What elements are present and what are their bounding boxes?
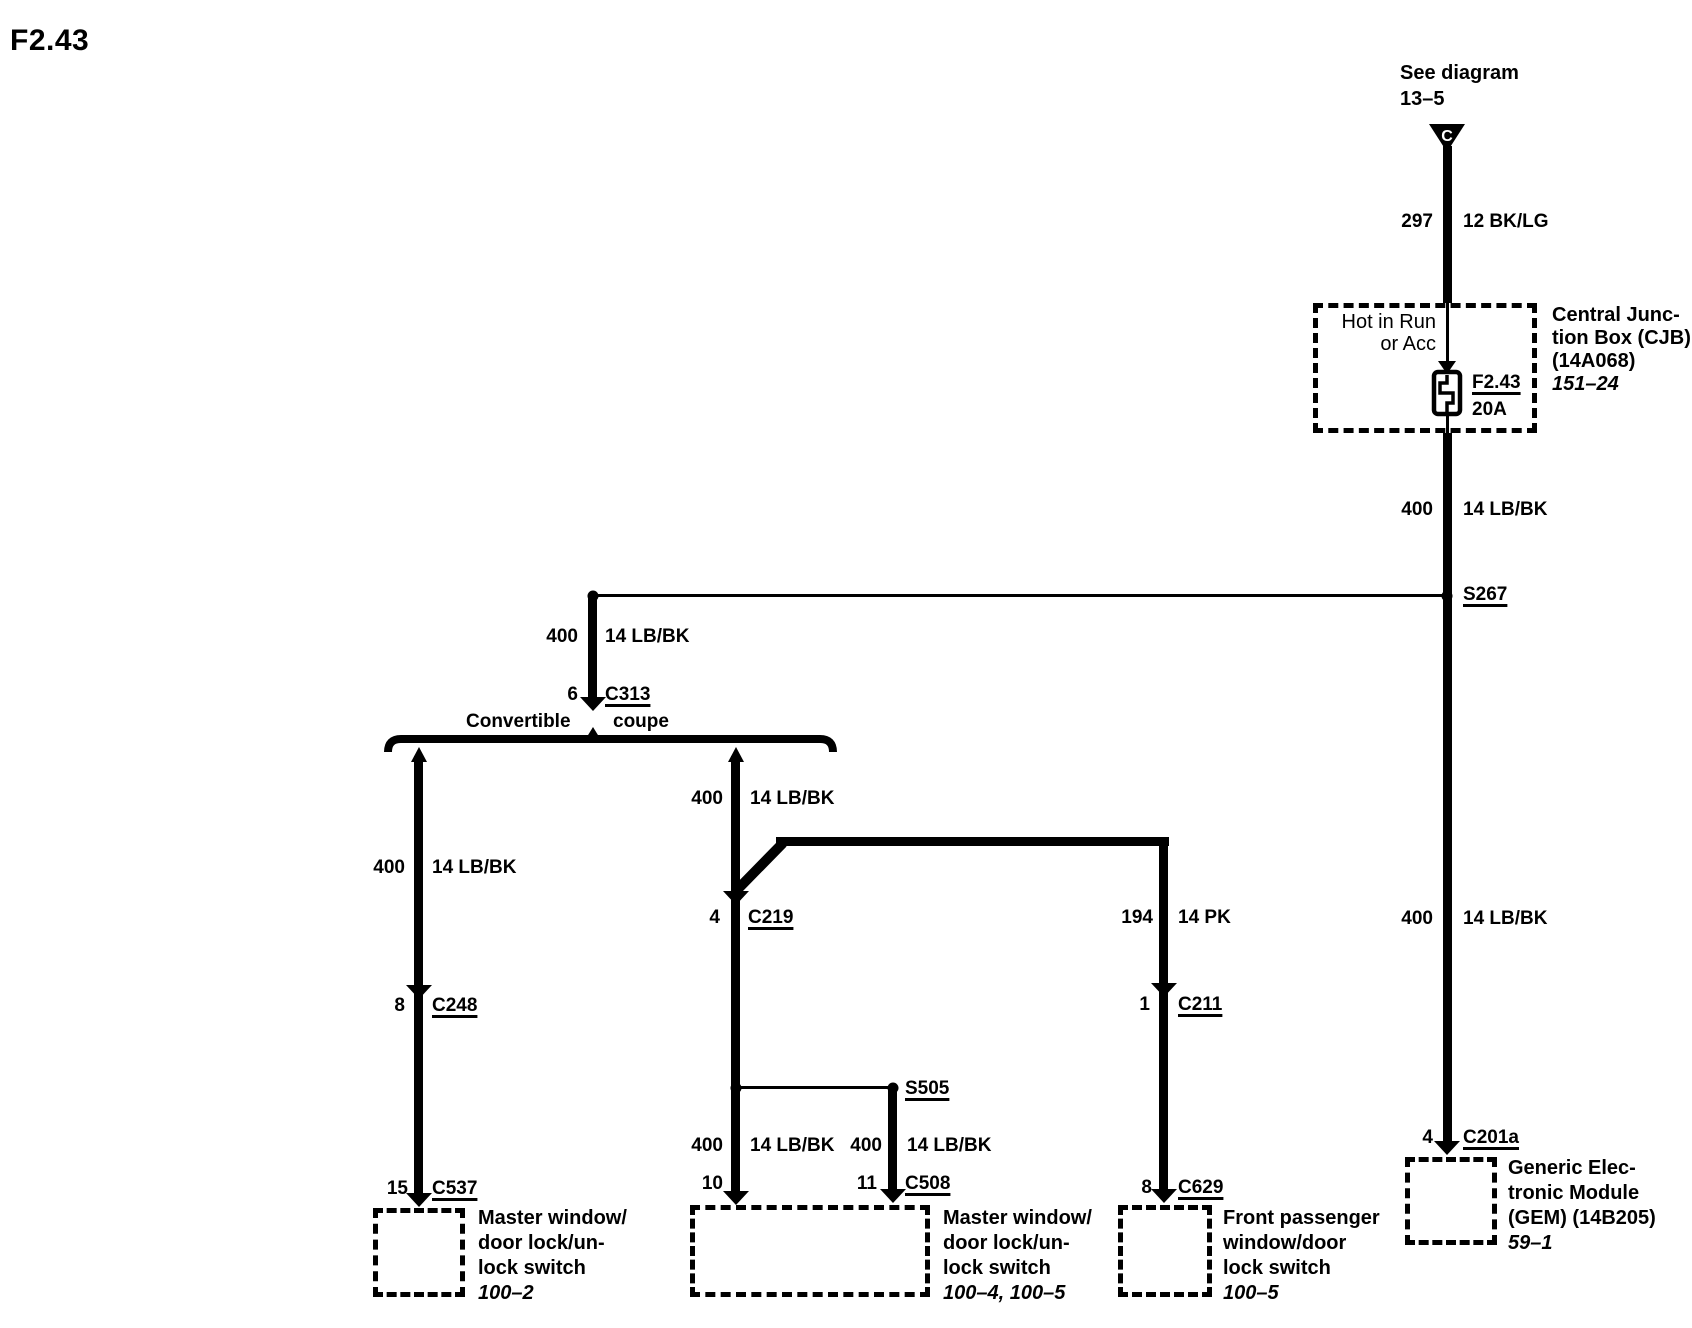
wire-passenger-horizontal — [776, 837, 1169, 846]
cjb-page-ref: 151–24 — [1552, 373, 1691, 396]
connector-c313-arrow-icon — [580, 697, 606, 711]
wire-s505-tap — [736, 1086, 893, 1089]
connector-c201a-pin: 4 — [1422, 1126, 1433, 1150]
connector-c537-label: C537 — [432, 1177, 477, 1201]
splice-s267-label: S267 — [1463, 583, 1507, 607]
wire-feed-vertical — [1443, 146, 1452, 303]
split-bracket — [388, 739, 833, 752]
connector-c211-label: C211 — [1178, 993, 1222, 1017]
component-page-ref: 100–2 — [478, 1281, 627, 1306]
master-switch-convertible-box — [373, 1208, 465, 1297]
splice-s505-label: S505 — [905, 1077, 949, 1101]
gem-label: Generic Elec- tronic Module (GEM) (14B20… — [1508, 1156, 1656, 1256]
source-note-line1: See diagram — [1400, 60, 1519, 86]
circuit-passenger-spec: 14 PK — [1178, 906, 1231, 930]
wire-s267-tap — [593, 594, 1447, 597]
cjb-name-line3: (14A068) — [1552, 350, 1691, 373]
connector-c248-pin: 8 — [394, 994, 405, 1018]
circuit-s505-right-spec: 14 LB/BK — [907, 1134, 991, 1158]
split-convertible-label: Convertible — [466, 710, 571, 734]
component-line: lock switch — [478, 1256, 627, 1281]
component-page-ref: 100–4, 100–5 — [943, 1281, 1092, 1306]
cjb-name-label: Central Junc- tion Box (CJB) (14A068) 15… — [1552, 304, 1691, 396]
circuit-s505-left-number: 400 — [691, 1134, 723, 1158]
circuit-cjb-out-number: 400 — [1401, 498, 1433, 522]
cjb-hot-label: Hot in Run or Acc — [1342, 311, 1437, 355]
master-switch-coupe-label: Master window/ door lock/un- lock switch… — [943, 1206, 1092, 1306]
connector-c219-label: C219 — [748, 906, 793, 930]
connector-c508-pin10: 10 — [702, 1172, 723, 1196]
component-line: window/door — [1223, 1231, 1380, 1256]
split-bracket-tick — [585, 727, 601, 740]
source-note: See diagram 13–5 — [1400, 60, 1519, 112]
wire-coupe-branch — [731, 756, 740, 1195]
circuit-to-c313-spec: 14 LB/BK — [605, 625, 689, 649]
component-line: lock switch — [1223, 1256, 1380, 1281]
source-triangle-letter: C — [1441, 128, 1453, 145]
wire-s505-right-leg — [888, 1088, 897, 1191]
page-title: F2.43 — [10, 24, 89, 58]
connector-c508-pin11: 11 — [857, 1172, 877, 1196]
connector-c629-arrow-icon — [1151, 1189, 1177, 1203]
component-line: door lock/un- — [943, 1231, 1092, 1256]
circuit-cjb-out-spec: 14 LB/BK — [1463, 498, 1547, 522]
component-line: Front passenger — [1223, 1206, 1380, 1231]
component-line: tronic Module — [1508, 1181, 1656, 1206]
circuit-coupe-number: 400 — [691, 787, 723, 811]
diagram-symbols: C — [0, 0, 1692, 1328]
connector-c629-pin: 8 — [1141, 1176, 1152, 1200]
wire-passenger-diagonal — [735, 843, 783, 892]
split-coupe-label: coupe — [613, 710, 669, 734]
circuit-s505-right-number: 400 — [850, 1134, 882, 1158]
circuit-s505-left-spec: 14 LB/BK — [750, 1134, 834, 1158]
connector-c201a-label: C201a — [1463, 1126, 1519, 1150]
master-switch-coupe-box — [690, 1205, 930, 1297]
circuit-feed-spec: 12 BK/LG — [1463, 210, 1549, 234]
connector-c313-pin: 6 — [567, 683, 578, 707]
circuit-to-gem-spec: 14 LB/BK — [1463, 907, 1547, 931]
cjb-hot-line2: or Acc — [1342, 333, 1437, 355]
connector-c629-label: C629 — [1178, 1176, 1223, 1200]
component-page-ref: 100–5 — [1223, 1281, 1380, 1306]
front-passenger-switch-box — [1118, 1205, 1212, 1297]
gem-box — [1405, 1157, 1497, 1245]
circuit-to-gem-number: 400 — [1401, 907, 1433, 931]
wire-main-to-gem — [1443, 433, 1452, 1145]
connector-c219-pin: 4 — [709, 906, 720, 930]
fuse-rating-label: 20A — [1472, 398, 1507, 422]
circuit-convertible-number: 400 — [373, 856, 405, 880]
component-line: Generic Elec- — [1508, 1156, 1656, 1181]
master-switch-convertible-label: Master window/ door lock/un- lock switch… — [478, 1206, 627, 1306]
component-page-ref: 59–1 — [1508, 1231, 1656, 1256]
component-line: (GEM) (14B205) — [1508, 1206, 1656, 1231]
wire-convertible-branch — [414, 756, 423, 1197]
wiring-diagram-page: F2.43 See diagram 13–5 C — [0, 0, 1692, 1328]
connector-c313-label: C313 — [605, 683, 650, 707]
wire-passenger-vertical — [1159, 837, 1168, 1189]
source-note-line2: 13–5 — [1400, 86, 1519, 112]
connector-c211-pin: 1 — [1139, 993, 1150, 1017]
component-line: door lock/un- — [478, 1231, 627, 1256]
circuit-coupe-spec: 14 LB/BK — [750, 787, 834, 811]
wire-to-c313 — [588, 597, 597, 699]
connector-c537-pin: 15 — [387, 1177, 408, 1201]
component-line: Master window/ — [478, 1206, 627, 1231]
fuse-name-label: F2.43 — [1472, 371, 1521, 395]
circuit-to-c313-number: 400 — [546, 625, 578, 649]
component-line: Master window/ — [943, 1206, 1092, 1231]
component-line: lock switch — [943, 1256, 1092, 1281]
connector-c248-label: C248 — [432, 994, 477, 1018]
cjb-name-line1: Central Junc- — [1552, 304, 1691, 327]
front-passenger-switch-label: Front passenger window/door lock switch … — [1223, 1206, 1380, 1306]
circuit-passenger-number: 194 — [1121, 906, 1153, 930]
cjb-hot-line1: Hot in Run — [1342, 311, 1437, 333]
circuit-feed-number: 297 — [1401, 210, 1433, 234]
connector-c508-label: C508 — [905, 1172, 950, 1196]
connector-c508-pin11-arrow-icon — [880, 1189, 906, 1203]
cjb-name-line2: tion Box (CJB) — [1552, 327, 1691, 350]
circuit-convertible-spec: 14 LB/BK — [432, 856, 516, 880]
